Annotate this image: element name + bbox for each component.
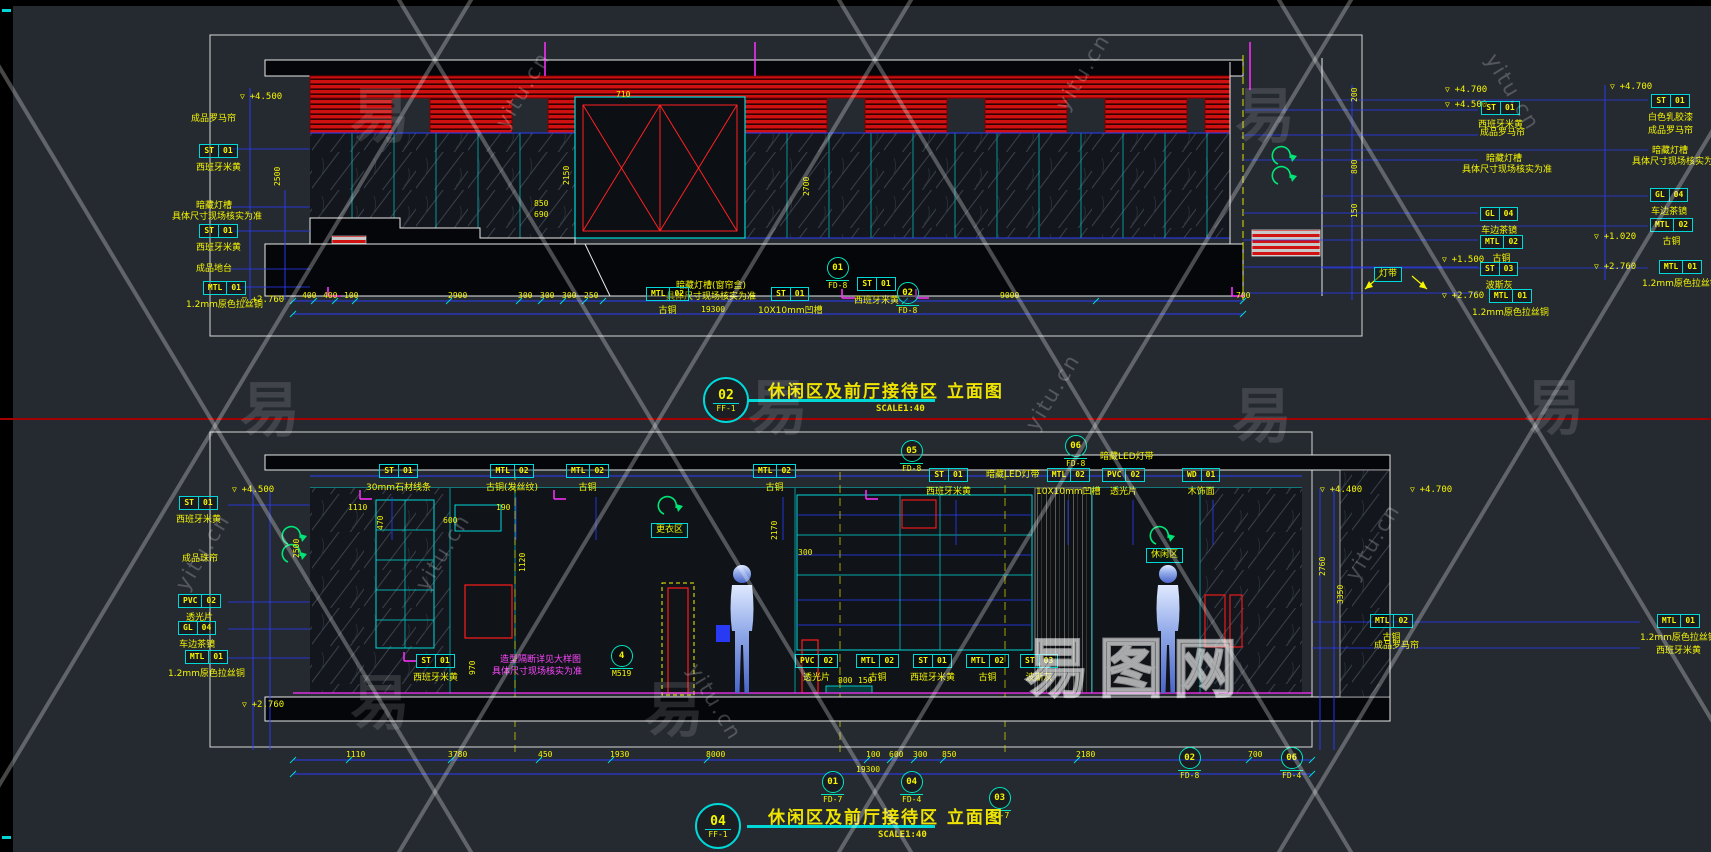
detail-callout: 06FD-8: [1064, 435, 1087, 468]
note-label: 暗藏LED灯带: [986, 470, 1040, 480]
material-tag: MTL011.2mm原色拉丝铜: [168, 650, 245, 679]
material-tag: ST0130mm石材线条: [366, 464, 431, 493]
dimension-label: 3350: [1336, 585, 1345, 604]
note-label: 暗藏LED灯带: [1100, 452, 1154, 462]
detail-callout: 04FD-4: [900, 771, 923, 804]
dimension-label: 1120: [518, 553, 527, 572]
material-tag: MTL011.2mm原色拉丝铜: [1642, 260, 1711, 289]
dimension-label: 2500: [273, 167, 282, 186]
material-tag: MTL011.2mm原色拉丝铜: [1472, 289, 1549, 318]
note-label: 具体尺寸现场核实为准: [172, 212, 262, 222]
dimension-label: 2900: [448, 291, 467, 300]
dimension-label: 2700: [802, 177, 811, 196]
material-tag: GL04车边茶镜: [1480, 207, 1518, 236]
scale-label: SCALE1:40: [878, 830, 927, 840]
dimension-label: 300: [798, 548, 812, 557]
scale-label: SCALE1:40: [876, 404, 925, 414]
material-tag: MTL011.2mm原色拉丝铜: [1640, 614, 1711, 643]
zone-label-box: 休闲区: [1146, 548, 1183, 563]
detail-callout: 01FD-7: [821, 771, 844, 804]
zone-label-box: 更衣区: [651, 523, 688, 538]
note-label: 成品珠帘: [182, 554, 218, 564]
dimension-label: 2150: [562, 166, 571, 185]
top-elevation-drawing: [210, 35, 1648, 336]
material-tag: MTL011.2mm原色拉丝铜: [186, 281, 263, 310]
dimension-label: 970: [468, 661, 477, 675]
elevation-marker: +4.700: [1410, 485, 1452, 495]
dimension-label: 1930: [610, 750, 629, 759]
dimension-label: 300: [913, 750, 927, 759]
note-label: 造型隔断详见大样图: [500, 655, 581, 665]
title-callout: 04FF-1: [695, 803, 741, 849]
elevation-marker: +4.700: [1610, 82, 1652, 92]
title-callout: 02FF-1: [703, 377, 749, 423]
material-tag: ST01西班牙米黄: [196, 224, 241, 253]
detail-callout: 06FD-4: [1280, 747, 1303, 780]
dimension-label: 2760: [1318, 557, 1327, 576]
detail-callout: 02FD-8: [896, 282, 919, 315]
material-tag: MTL02古铜: [646, 287, 689, 316]
title-underline: [747, 399, 935, 402]
drawing-linework: [0, 0, 1711, 852]
material-tag: ST03波斯灰: [1020, 654, 1058, 683]
title-underline: [747, 825, 935, 828]
detail-callout: 05FD-8: [900, 440, 923, 473]
material-tag: MTL02古铜: [1370, 614, 1413, 643]
elevation-marker: +2.760: [242, 700, 284, 710]
material-tag: PVC02透光片: [1102, 468, 1145, 497]
dimension-label: 600: [889, 750, 903, 759]
material-tag: MTL02古铜: [753, 464, 796, 493]
note-label: 西班牙米黄: [1656, 646, 1701, 656]
material-tag: ST01白色乳胶漆: [1648, 94, 1693, 123]
dimension-label: 3780: [448, 750, 467, 759]
dimension-label: 100: [344, 291, 358, 300]
dimension-label: 300: [562, 291, 576, 300]
dimension-label: 250: [584, 291, 598, 300]
elevation-marker: +4.500: [232, 485, 274, 495]
note-label: 成品罗马帘: [1648, 126, 1693, 136]
detail-callout: 01FD-8: [826, 257, 849, 290]
dimension-label: 800: [1350, 160, 1359, 174]
material-tag: ST01西班牙米黄: [413, 654, 458, 683]
dimension-label: 9000: [1000, 291, 1019, 300]
dimension-label: 2180: [1076, 750, 1095, 759]
note-label: 暗藏灯槽: [1486, 154, 1522, 164]
dimension-label: 400: [302, 291, 316, 300]
note-label: 暗藏灯槽: [1652, 146, 1688, 156]
material-tag: MTL0210X10mm凹槽: [1036, 468, 1101, 497]
dimension-total: 19300: [856, 765, 880, 774]
dimension-total: 19300: [701, 305, 725, 314]
note-label: 成品罗马帘: [191, 114, 236, 124]
dimension-label: 200: [1350, 88, 1359, 102]
dimension-label: 300: [540, 291, 554, 300]
material-tag: PVC02透光片: [795, 654, 838, 683]
dimension-label: 850: [534, 199, 548, 208]
material-tag: ST0110X10mm凹槽: [758, 287, 823, 316]
elevation-marker: +1.500: [1442, 255, 1484, 265]
material-tag: MTL02古铜(发丝纹): [486, 464, 538, 493]
dimension-label: 1110: [348, 503, 367, 512]
material-tag: ST01西班牙米黄: [1478, 101, 1523, 130]
material-tag: MTL02古铜: [966, 654, 1009, 683]
elevation-marker: +2.760: [1594, 262, 1636, 272]
material-tag: MTL02古铜: [1480, 235, 1523, 264]
detail-callout: 02FD-8: [1178, 747, 1201, 780]
material-tag: WD01木饰面: [1182, 468, 1220, 497]
dimension-label: 470: [376, 516, 385, 530]
dimension-label: 400: [323, 291, 337, 300]
material-tag: GL04车边茶镜: [1650, 188, 1688, 217]
elevation-marker: +4.500: [240, 92, 282, 102]
elevation-marker: +4.700: [1445, 85, 1487, 95]
material-tag: PVC02透光片: [178, 594, 221, 623]
note-label: 具体尺寸现场核实为准: [492, 667, 582, 677]
material-tag: ST01西班牙米黄: [196, 144, 241, 173]
elevation-marker: +1.020: [1594, 232, 1636, 242]
elevation-marker: +4.400: [1320, 485, 1362, 495]
dimension-label: 690: [534, 210, 548, 219]
dimension-label: 850: [942, 750, 956, 759]
material-tag: ST03波斯灰: [1480, 262, 1518, 291]
material-tag: MTL02古铜: [1650, 218, 1693, 247]
dimension-label: 100: [866, 750, 880, 759]
note-label: 具体尺寸现场核实为准: [1462, 165, 1552, 175]
material-tag: MTL02古铜: [566, 464, 609, 493]
note-label: 成品地台: [196, 264, 232, 274]
dimension-label: 2170: [770, 521, 779, 540]
dimension-label: 300: [518, 291, 532, 300]
dimension-label: 700: [1236, 291, 1250, 300]
note-label: 暗藏灯槽: [196, 201, 232, 211]
dimension-label: 190: [496, 503, 510, 512]
dimension-label: 800: [838, 676, 852, 685]
material-tag: MTL02古铜: [856, 654, 899, 683]
dimension-label: 710: [616, 90, 630, 99]
material-tag: ST01西班牙米黄: [926, 468, 971, 497]
dimension-label: 600: [443, 516, 457, 525]
material-tag: ST01西班牙米黄: [854, 277, 899, 306]
dimension-label: 150: [1350, 204, 1359, 218]
cad-sheet: 成品罗马帘 ST01西班牙米黄 暗藏灯槽 具体尺寸现场核实为准 ST01西班牙米…: [0, 0, 1711, 852]
dimension-label: 8000: [706, 750, 725, 759]
dimension-label: 450: [538, 750, 552, 759]
dimension-label: 700: [1248, 750, 1262, 759]
note-label: 具体尺寸现场核实为准: [1632, 157, 1711, 167]
material-tag: ST01西班牙米黄: [910, 654, 955, 683]
material-tag: GL04车边茶镜: [178, 621, 216, 650]
material-tag: ST01西班牙米黄: [176, 496, 221, 525]
dimension-label: 2500: [292, 539, 301, 558]
lightstrip-note-box: 灯带: [1374, 267, 1402, 282]
door-callout: 4M519: [610, 645, 633, 678]
dimension-label: 1110: [346, 750, 365, 759]
